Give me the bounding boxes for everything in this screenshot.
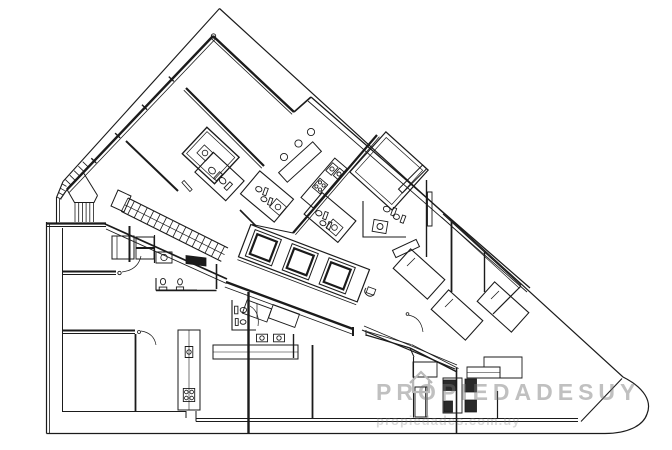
svg-text:propiedades.com.uy: propiedades.com.uy <box>376 413 520 428</box>
